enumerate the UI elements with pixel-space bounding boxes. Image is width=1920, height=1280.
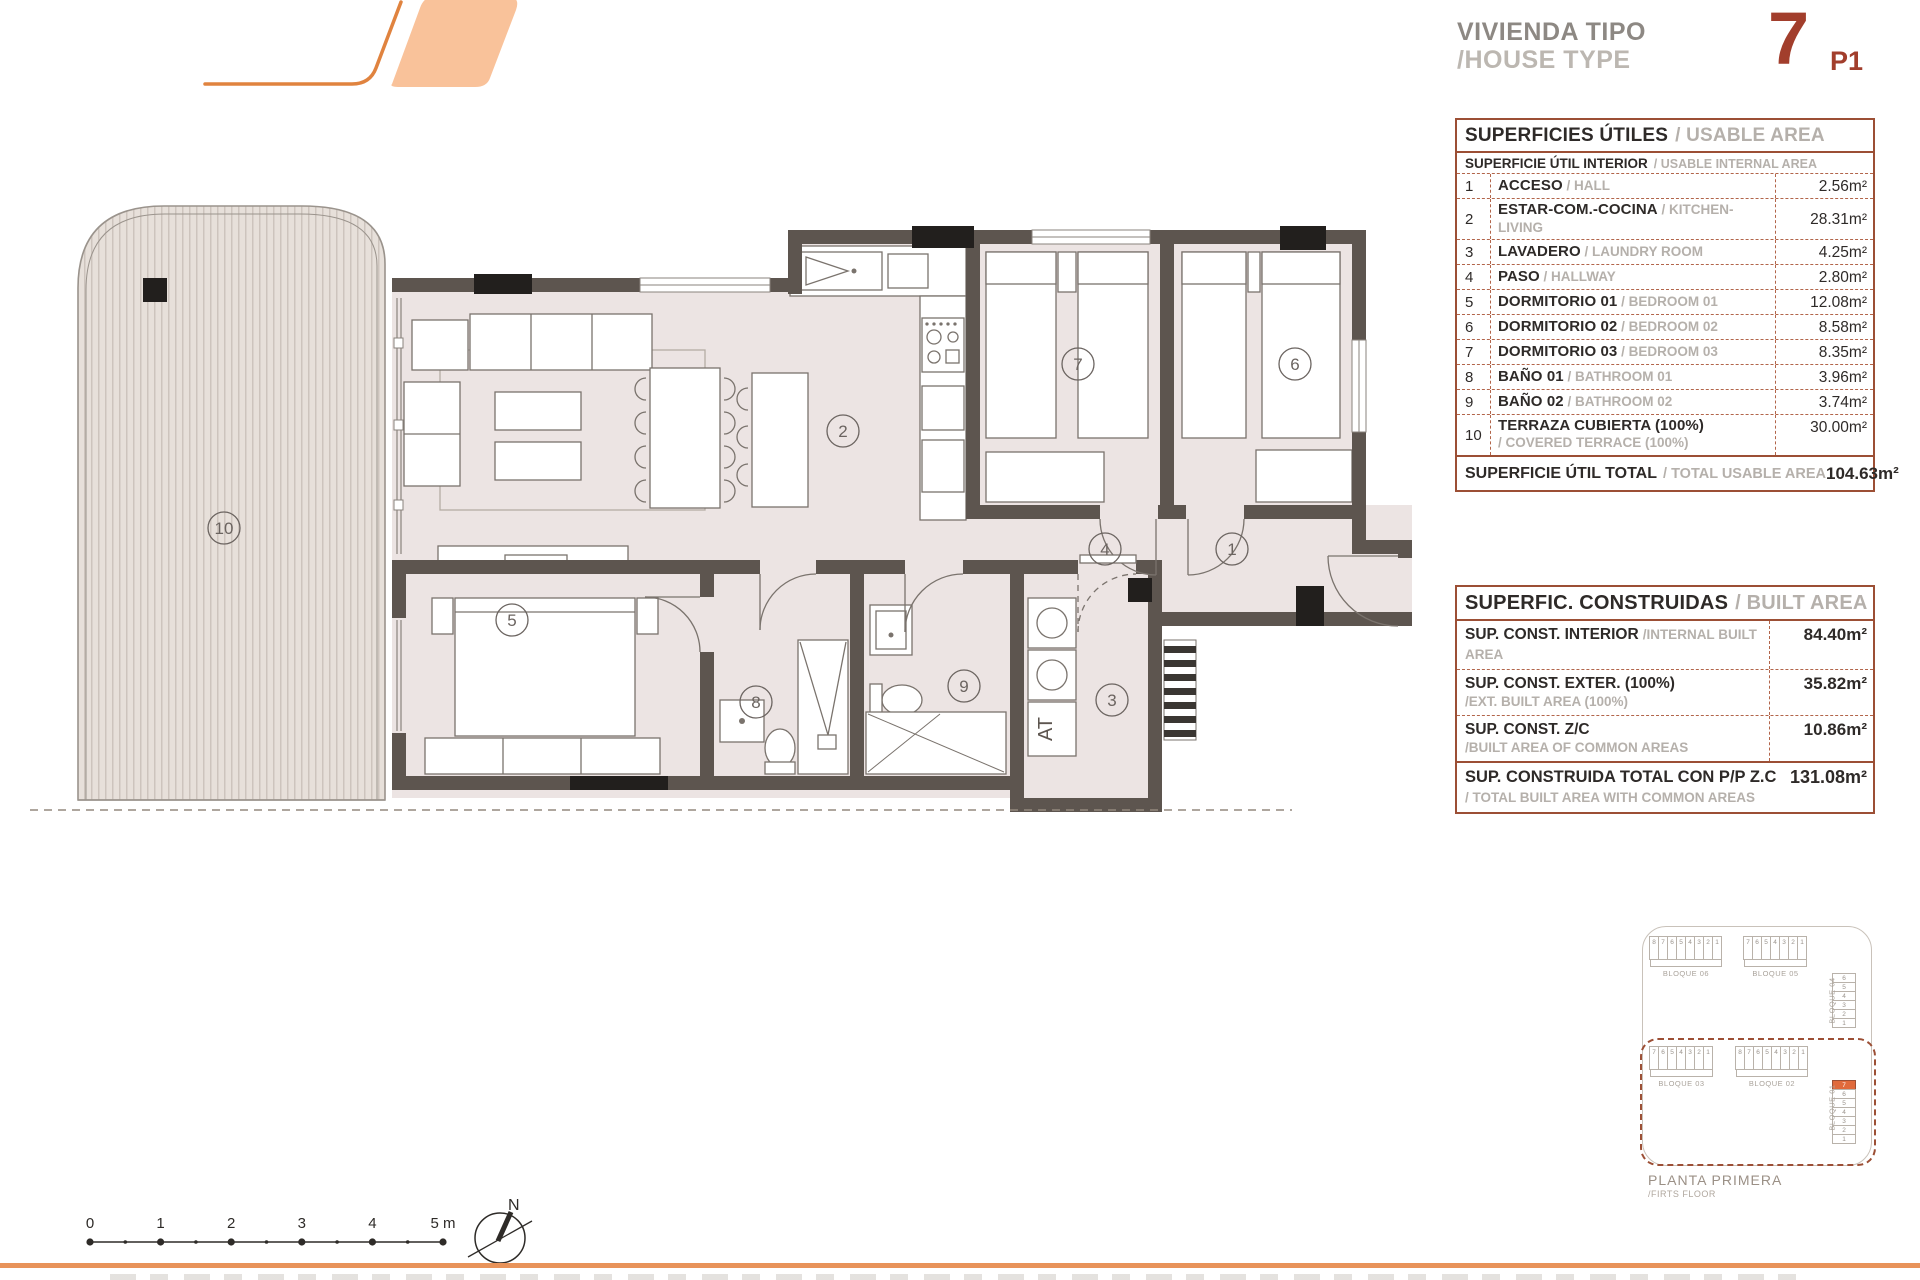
bloque-03-label: BLOQUE 03 bbox=[1650, 1079, 1713, 1088]
house-type-floor: P1 bbox=[1830, 46, 1863, 77]
scale-bar: 0 1 2 3 4 5 m bbox=[86, 1215, 456, 1246]
washer bbox=[1028, 598, 1076, 648]
bloque-01-label: BLOQUE 01 bbox=[1828, 1078, 1837, 1138]
north-label: N bbox=[508, 1197, 520, 1214]
armchair bbox=[412, 320, 468, 370]
usable-title-es: SUPERFICIES ÚTILES bbox=[1465, 125, 1668, 147]
usable-total-row: SUPERFICIE ÚTIL TOTAL / TOTAL USABLE ARE… bbox=[1457, 455, 1873, 490]
room-label-6: 6 bbox=[1290, 355, 1299, 374]
room-label-10: 10 bbox=[215, 519, 234, 538]
bloque-05: 7654321 BLOQUE 05 bbox=[1744, 936, 1807, 978]
room-label-7: 7 bbox=[1073, 355, 1082, 374]
island bbox=[752, 373, 808, 507]
oven bbox=[922, 386, 964, 430]
footer-cropped-text bbox=[110, 1274, 1810, 1280]
column bbox=[143, 278, 167, 302]
usable-area-row: 5DORMITORIO 01 / BEDROOM 0112.08m² bbox=[1457, 289, 1873, 314]
dryer bbox=[1028, 650, 1076, 700]
usable-area-row: 6DORMITORIO 02 / BEDROOM 028.58m² bbox=[1457, 314, 1873, 339]
usable-area-table: SUPERFICIES ÚTILES / USABLE AREA SUPERFI… bbox=[1455, 118, 1875, 492]
toilet bbox=[765, 729, 795, 767]
sheet-title: VIVIENDA TIPO /HOUSE TYPE bbox=[1457, 18, 1757, 74]
wardrobe bbox=[425, 738, 660, 774]
bloque-04: BLOQUE 04 654321 bbox=[1832, 974, 1856, 1028]
usable-table-header: SUPERFICIES ÚTILES / USABLE AREA bbox=[1457, 120, 1873, 153]
site-key-plan: 87654321 BLOQUE 06 7654321 BLOQUE 05 BLO… bbox=[1640, 920, 1880, 1205]
wardrobe bbox=[986, 452, 1104, 502]
fridge bbox=[922, 440, 964, 492]
room-label-9: 9 bbox=[959, 677, 968, 696]
built-total-label-es: SUP. CONSTRUIDA TOTAL CON P/P Z.C bbox=[1465, 768, 1776, 786]
usable-total-label-en: / TOTAL USABLE AREA bbox=[1663, 466, 1826, 482]
coffee-table bbox=[495, 392, 581, 430]
stairs bbox=[1164, 640, 1196, 740]
footer-accent-line bbox=[0, 1263, 1920, 1268]
bloque-06: 87654321 BLOQUE 06 bbox=[1650, 936, 1722, 978]
plan-sheet: 1 2 3 4 5 6 7 8 9 10 AT 0 1 2 3 4 5 m bbox=[0, 0, 1920, 1280]
house-type-label-en: /HOUSE TYPE bbox=[1457, 46, 1757, 74]
built-total-value: 131.08m² bbox=[1790, 767, 1867, 806]
room-label-4: 4 bbox=[1100, 540, 1109, 559]
usable-title-en: / USABLE AREA bbox=[1675, 125, 1825, 147]
room-label-3: 3 bbox=[1107, 691, 1116, 710]
dining-table bbox=[650, 368, 720, 508]
bloque-06-label: BLOQUE 06 bbox=[1650, 969, 1722, 978]
built-title-es: SUPERFIC. CONSTRUIDAS bbox=[1465, 592, 1728, 615]
scale-tick-4: 4 bbox=[368, 1215, 376, 1232]
usable-area-row: 8BAÑO 01 / BATHROOM 013.96m² bbox=[1457, 364, 1873, 389]
unit-cell: 1 bbox=[1797, 936, 1807, 960]
brand-logo bbox=[205, 0, 517, 87]
scale-tick-3: 3 bbox=[298, 1215, 306, 1232]
usable-area-row: 9BAÑO 02 / BATHROOM 023.74m² bbox=[1457, 389, 1873, 414]
house-type-number: 7 bbox=[1768, 2, 1809, 76]
built-total-label-en: / TOTAL BUILT AREA WITH COMMON AREAS bbox=[1465, 789, 1790, 807]
room-label-1: 1 bbox=[1227, 540, 1236, 559]
built-title-en: / BUILT AREA bbox=[1735, 592, 1867, 615]
usable-area-row: 7DORMITORIO 03 / BEDROOM 038.35m² bbox=[1457, 339, 1873, 364]
usable-subheader-en: / USABLE INTERNAL AREA bbox=[1654, 157, 1817, 171]
bloque-04-label: BLOQUE 04 bbox=[1828, 971, 1837, 1031]
scale-tick-2: 2 bbox=[227, 1215, 235, 1232]
usable-area-row: 3LAVADERO / LAUNDRY ROOM4.25m² bbox=[1457, 239, 1873, 264]
floor-caption-es: PLANTA PRIMERA bbox=[1648, 1172, 1782, 1188]
usable-table-subheader: SUPERFICIE ÚTIL INTERIOR / USABLE INTERN… bbox=[1457, 153, 1873, 173]
sofa bbox=[470, 314, 652, 370]
bloque-05-label: BLOQUE 05 bbox=[1744, 969, 1807, 978]
built-total-row: SUP. CONSTRUIDA TOTAL CON P/P Z.C / TOTA… bbox=[1457, 761, 1873, 812]
kitchen-sink bbox=[798, 252, 882, 290]
floor-caption-en: /FIRTS FLOOR bbox=[1648, 1189, 1716, 1199]
house-type-label-es: VIVIENDA TIPO bbox=[1457, 18, 1757, 46]
built-area-row: SUP. CONST. INTERIOR/INTERNAL BUILT AREA… bbox=[1457, 621, 1873, 669]
built-area-table: SUPERFIC. CONSTRUIDAS / BUILT AREA SUP. … bbox=[1455, 585, 1875, 814]
hob bbox=[922, 318, 964, 372]
built-table-header: SUPERFIC. CONSTRUIDAS / BUILT AREA bbox=[1457, 587, 1873, 621]
built-area-row: SUP. CONST. EXTER. (100%)/EXT. BUILT ARE… bbox=[1457, 669, 1873, 715]
unit-cell: 1 bbox=[1703, 1046, 1713, 1070]
usable-area-row: 2ESTAR-COM.-COCINA / KITCHEN-LIVING28.31… bbox=[1457, 198, 1873, 239]
north-arrow: N bbox=[468, 1197, 532, 1263]
terrace bbox=[78, 206, 385, 800]
unit-cell: 1 bbox=[1712, 936, 1722, 960]
bloque-03: 7654321 BLOQUE 03 bbox=[1650, 1046, 1713, 1088]
unit-cell: 1 bbox=[1798, 1046, 1808, 1070]
usable-subheader-es: SUPERFICIE ÚTIL INTERIOR bbox=[1465, 156, 1648, 171]
floorplan-drawing: 1 2 3 4 5 6 7 8 9 10 AT 0 1 2 3 4 5 m bbox=[0, 0, 1460, 1280]
bloque-01: BLOQUE 01 7654321 bbox=[1832, 1081, 1856, 1144]
room-label-8: 8 bbox=[751, 693, 760, 712]
scale-tick-5: 5 m bbox=[430, 1215, 455, 1232]
at-label: AT bbox=[1035, 717, 1057, 741]
bedroom1-furniture bbox=[425, 598, 660, 774]
coffee-table bbox=[495, 442, 581, 480]
usable-area-row: 4PASO / HALLWAY2.80m² bbox=[1457, 264, 1873, 289]
usable-area-row: 10TERRAZA CUBIERTA (100%)/ COVERED TERRA… bbox=[1457, 414, 1873, 455]
bloque-02: 87654321 BLOQUE 02 bbox=[1736, 1046, 1808, 1088]
usable-area-row: 1ACCESO / HALL2.56m² bbox=[1457, 173, 1873, 198]
room-label-5: 5 bbox=[507, 611, 516, 630]
toilet bbox=[882, 685, 922, 715]
usable-total-label-es: SUPERFICIE ÚTIL TOTAL bbox=[1465, 465, 1657, 483]
built-area-row: SUP. CONST. Z/C/BUILT AREA OF COMMON ARE… bbox=[1457, 715, 1873, 761]
usable-total-value: 104.63m² bbox=[1826, 464, 1899, 484]
bloque-02-label: BLOQUE 02 bbox=[1736, 1079, 1808, 1088]
room-label-2: 2 bbox=[838, 422, 847, 441]
scale-tick-0: 0 bbox=[86, 1215, 94, 1232]
wardrobe bbox=[1256, 450, 1352, 502]
scale-tick-1: 1 bbox=[156, 1215, 164, 1232]
